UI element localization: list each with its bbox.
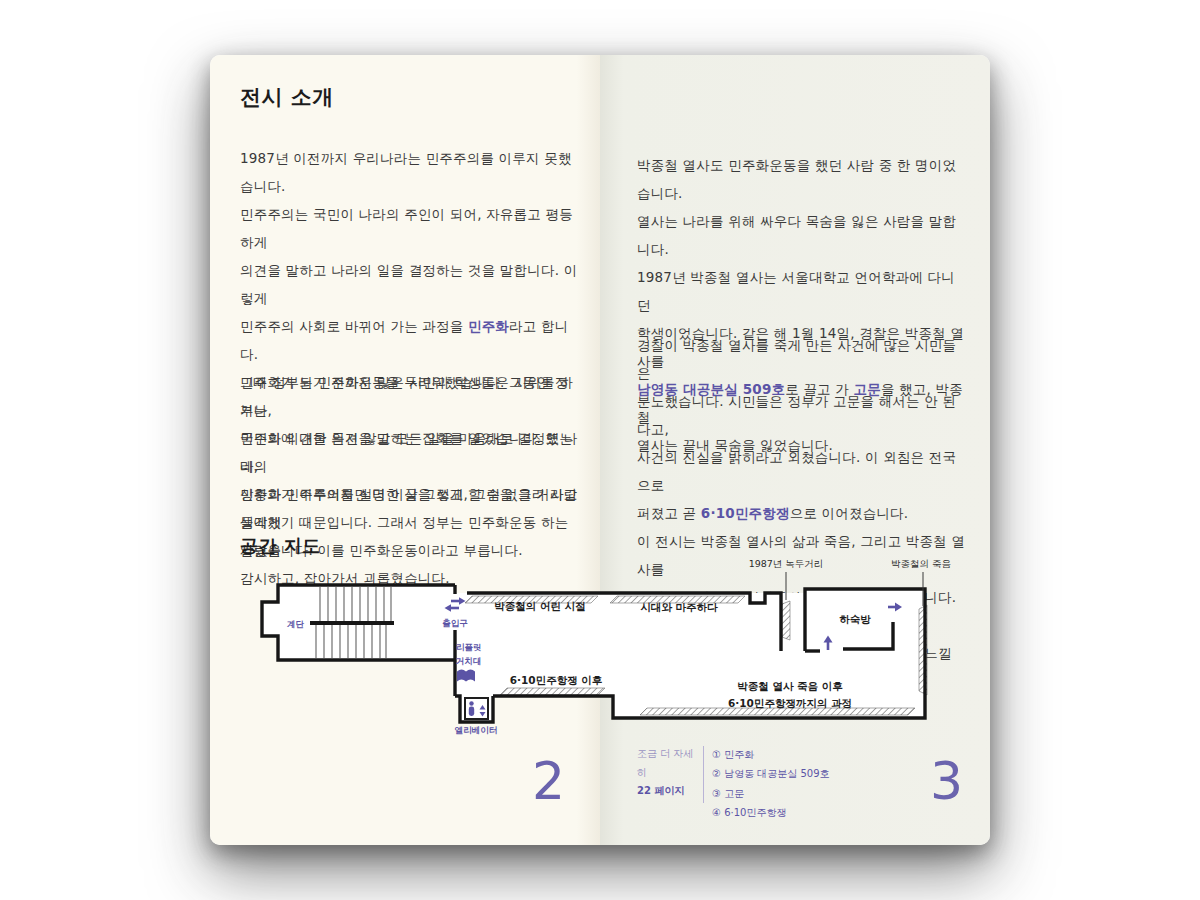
- map-label-entrance: 출입구: [442, 618, 468, 628]
- page-number-right: 3: [930, 755, 963, 807]
- map-label-stairs: 계단: [287, 619, 305, 629]
- screenshot-canvas: { "accent_color": "#5b54a6", "paper_colo…: [0, 0, 1200, 900]
- map-callout-nokdu: 1987년 녹두거리: [749, 558, 824, 569]
- map-label-after-610: 6·10민주항쟁 이후: [510, 674, 603, 686]
- elevator-icon: [465, 698, 488, 719]
- map-label-leaflet-2: 거치대: [456, 656, 482, 666]
- footer-more-detail: 조금 더 자세히 22 페이지: [637, 745, 703, 801]
- map-label-facing-era: 시대와 마주하다: [640, 601, 718, 613]
- map-label-childhood: 박종철의 어린 시절: [494, 600, 585, 612]
- map-label-elevator: 엘리베이터: [455, 725, 498, 735]
- footnote-1: ① 민주화: [712, 745, 830, 764]
- map-label-after-death-1: 박종철 열사 죽음 이후: [737, 680, 843, 692]
- booklet-spread: 전시 소개 1987년 이전까지 우리나라는 민주주의를 이루지 못했습니다. …: [210, 55, 990, 845]
- hatch-after-610: [500, 688, 605, 695]
- floor-map: 계단 출입구 박종철의 어린 시절 시대와 마주하다 리플릿 거치대 6·10민…: [255, 552, 955, 747]
- footnote-3: ③ 고문: [712, 784, 830, 803]
- more-detail-page: 22 페이지: [637, 782, 703, 801]
- map-label-leaflet-1: 리플릿: [456, 642, 482, 652]
- footnote-list: ① 민주화 ② 남영동 대공분실 509호 ③ 고문 ④ 6·10민주항쟁: [712, 745, 830, 822]
- footnote-4: ④ 6·10민주항쟁: [712, 803, 830, 822]
- hatch-nokdu: [782, 601, 790, 640]
- map-label-boarding-room: 하숙방: [839, 613, 871, 625]
- page-title: 전시 소개: [240, 83, 334, 111]
- map-label-after-death-2: 6·10민주항쟁까지의 과정: [728, 697, 852, 709]
- map-callout-death: 박종철의 죽음: [891, 558, 951, 569]
- hatch-bottom-hall: [640, 708, 915, 715]
- footer-divider: [703, 746, 704, 803]
- footnote-2: ② 남영동 대공분실 509호: [712, 764, 830, 783]
- more-detail-label: 조금 더 자세히: [637, 745, 703, 782]
- page-number-left: 2: [532, 755, 565, 807]
